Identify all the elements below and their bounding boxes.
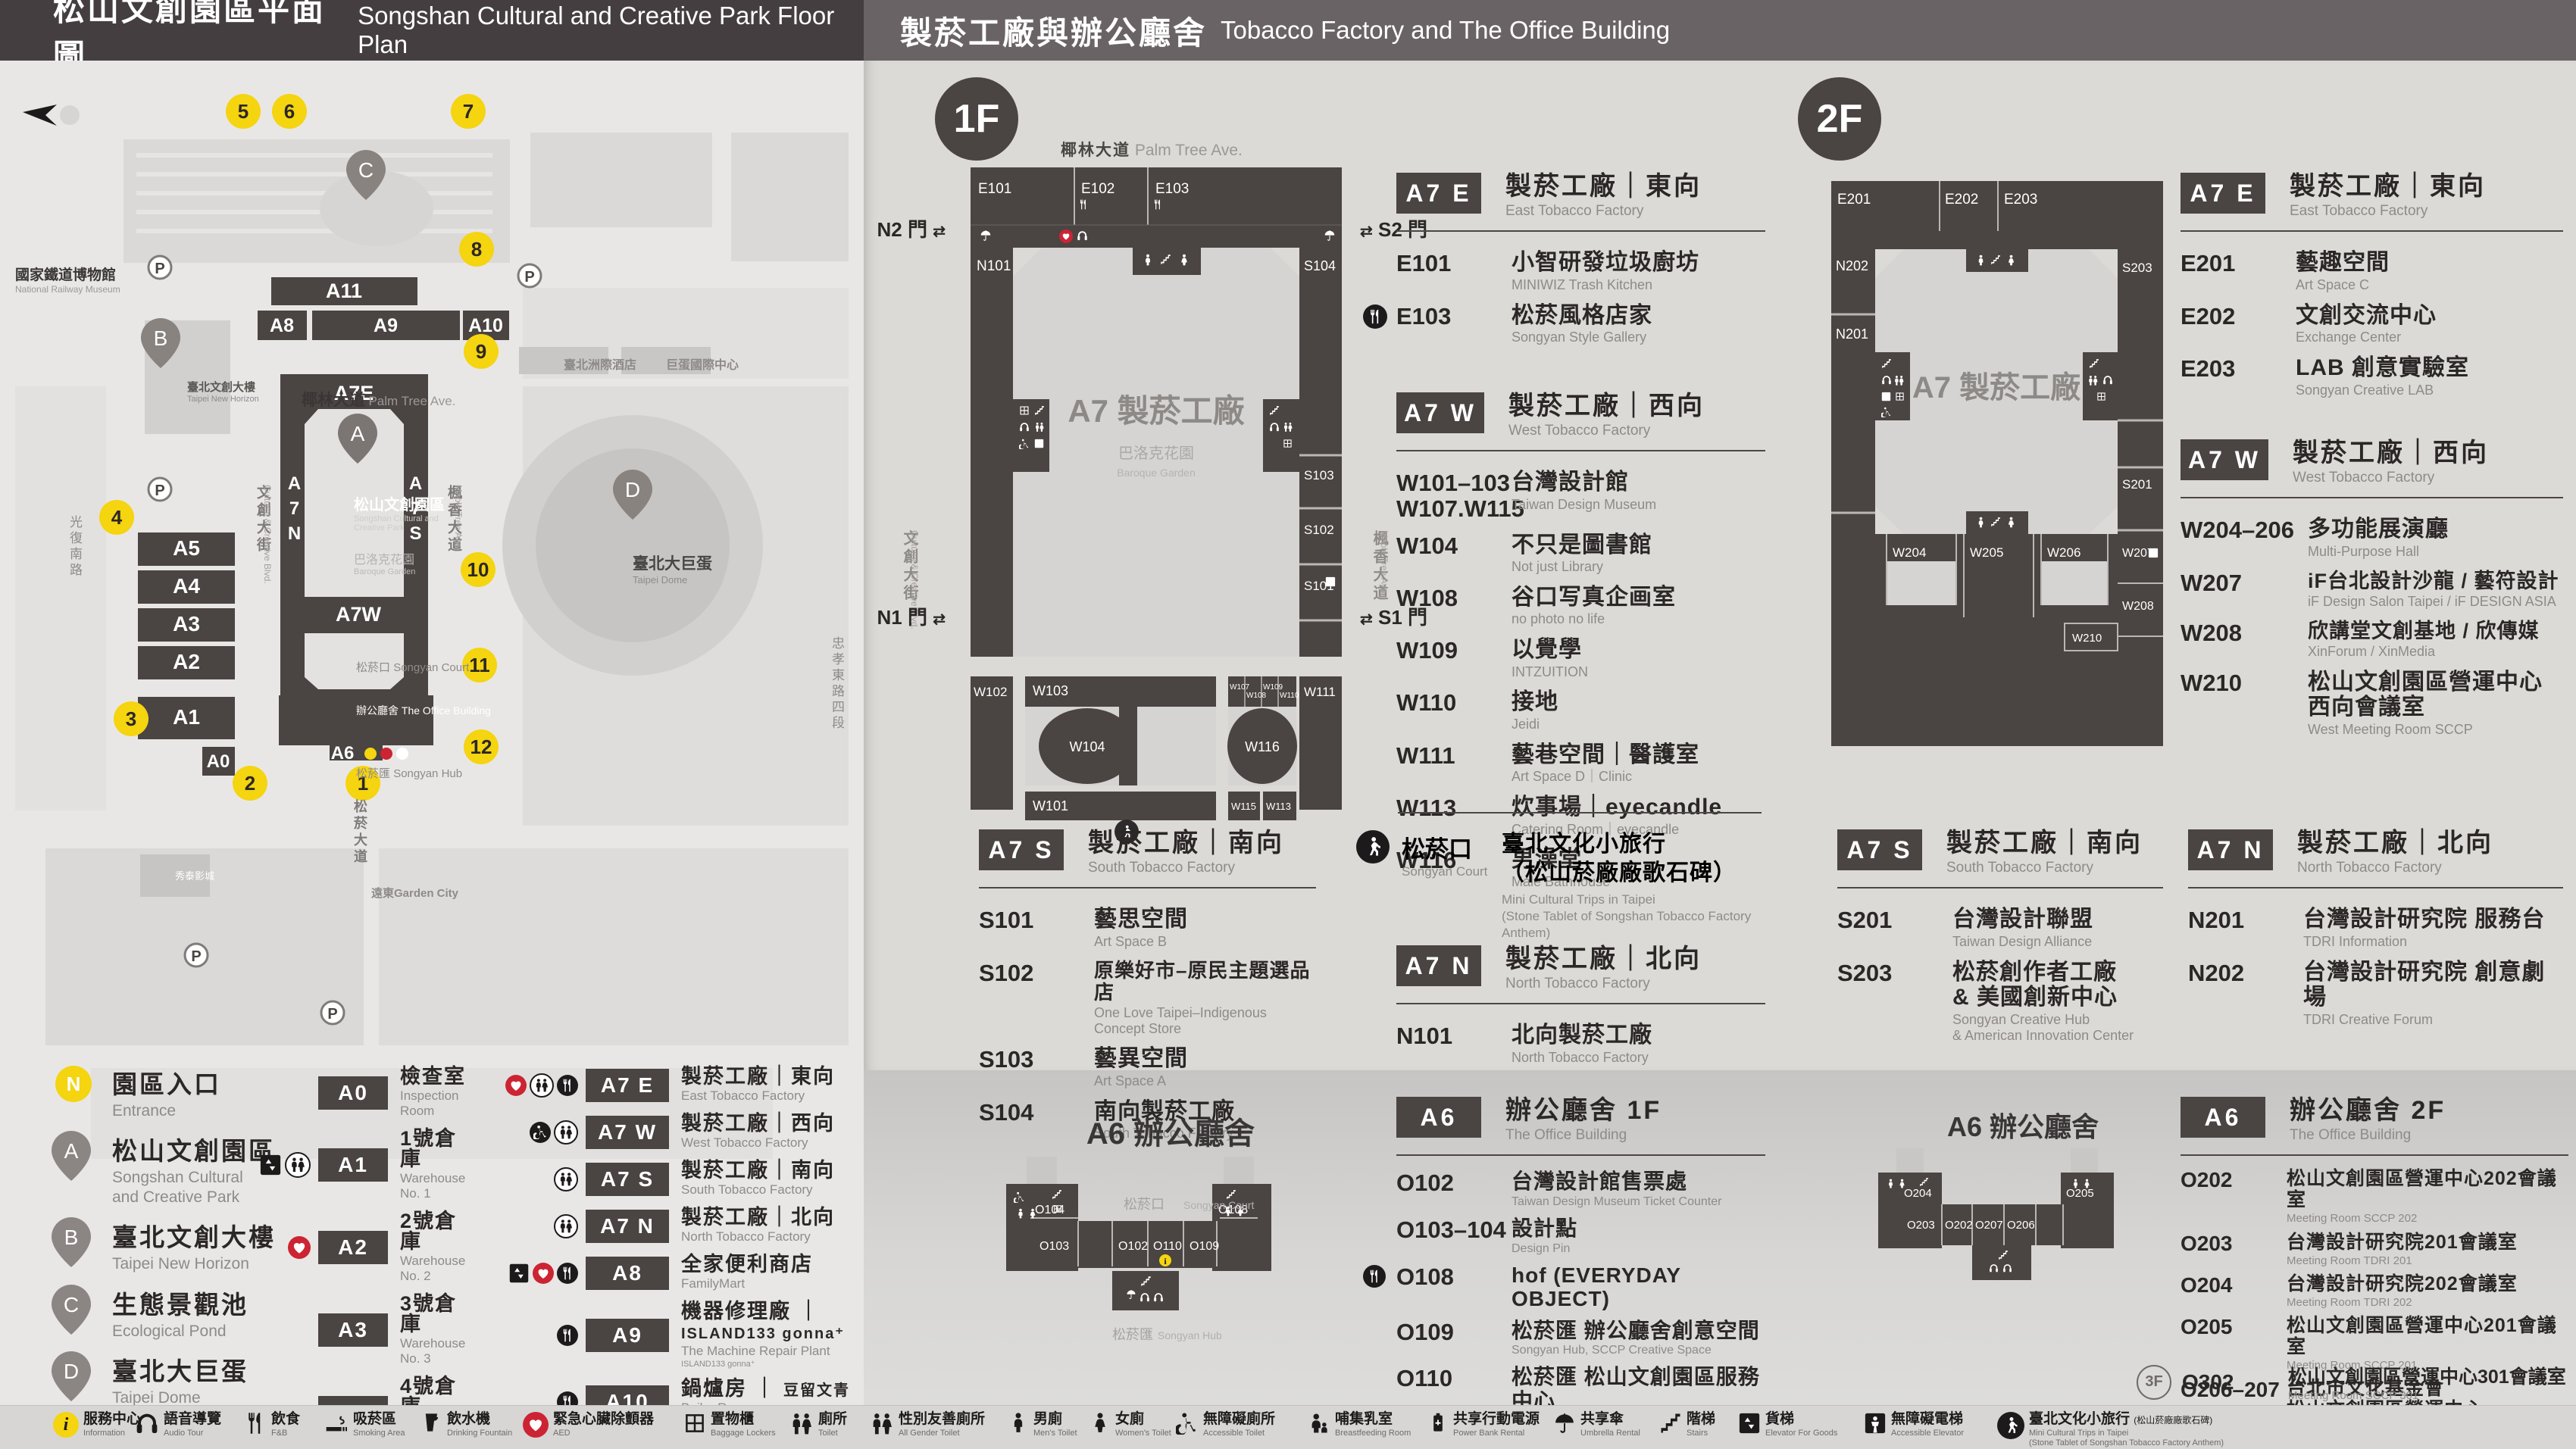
svg-text:N: N bbox=[67, 1073, 81, 1095]
legend-a7s: A7 S 製菸工廠｜南向South Tobacco Factory bbox=[481, 1160, 864, 1198]
a6-plan-title: A6 辦公廳舍 bbox=[1086, 1116, 1255, 1151]
guangfu-rd-label: 光復南路 bbox=[65, 515, 84, 579]
svg-text:3: 3 bbox=[126, 707, 136, 730]
svg-text:A: A bbox=[64, 1139, 79, 1163]
room-w113: W113 bbox=[1266, 801, 1291, 812]
room-o205: O205 bbox=[2066, 1187, 2094, 1200]
map-a7n-label: A7N bbox=[283, 473, 305, 548]
legend-a7n: A7 N 製菸工廠｜北向North Tobacco Factory bbox=[481, 1207, 864, 1244]
directory-item: W207iF台北設計沙龍 / 藝符設計iF Design Salon Taipe… bbox=[2181, 570, 2563, 610]
badge-a7w-2f: A7 W bbox=[2181, 439, 2268, 480]
map-a3-label: A3 bbox=[173, 612, 200, 635]
maple-ave-1f-en: Maple Tree Ave. bbox=[1379, 530, 1390, 596]
room-w102: W102 bbox=[974, 685, 1007, 699]
room-o206: O206 bbox=[2007, 1219, 2035, 1232]
legend-a2: A2 2號倉庫Warehouse No. 2 bbox=[214, 1211, 471, 1284]
directory-item: E101小智研發垃圾廚坊MINIWIZ Trash Kitchen bbox=[1396, 250, 1765, 292]
map-a7w-label: A7W bbox=[336, 603, 382, 626]
zhongxiao-rd-label: 忠孝東路四段 bbox=[827, 636, 846, 732]
room-w110: W110 bbox=[1280, 692, 1299, 700]
dir-2f-a7n: A7 N 製菸工廠｜北向North Tobacco Factory N201台灣… bbox=[2188, 829, 2563, 1038]
parking-icon: P bbox=[517, 263, 542, 292]
legend-a8: A8 全家便利商店FamilyMart bbox=[481, 1254, 864, 1291]
room-s103: S103 bbox=[1304, 468, 1334, 482]
svg-text:C: C bbox=[64, 1293, 79, 1316]
directory-item: O202松山文創園區營運中心202會議室Meeting Room SCCP 20… bbox=[2181, 1168, 2568, 1225]
directory-item: W108谷口写真企画室no photo no life bbox=[1396, 585, 1765, 627]
svg-text:D: D bbox=[64, 1360, 79, 1383]
directory-item: E202文創交流中心Exchange Center bbox=[2181, 303, 2563, 345]
directory-item: W110接地Jeidi bbox=[1396, 689, 1765, 732]
directory-item: O102台灣設計館售票處Taiwan Design Museum Ticket … bbox=[1396, 1170, 1765, 1209]
section-title-en: Tobacco Factory and The Office Building bbox=[1221, 16, 1670, 45]
room-s104: S104 bbox=[1304, 258, 1336, 273]
legend-a1: A1 1號倉庫Warehouse No. 1 bbox=[214, 1129, 471, 1201]
room-w208: W208 bbox=[2122, 600, 2154, 613]
room-w115: W115 bbox=[1231, 801, 1256, 812]
room-w107: W107 bbox=[1230, 683, 1250, 692]
room-o204: O204 bbox=[1904, 1187, 1932, 1200]
directory-item: W104不只是圖書館Not just Library bbox=[1396, 532, 1765, 575]
badge-a6-2f: A6 bbox=[2181, 1097, 2265, 1138]
badge-a7e: A7 E bbox=[1396, 173, 1481, 214]
room-w111: W111 bbox=[1304, 685, 1336, 699]
room-o109: O109 bbox=[1190, 1240, 1219, 1253]
legend-cultural-trip: 臺北文化小旅行 (松山菸廠廠歌石碑) Mini Cultural Trips i… bbox=[1997, 1412, 2224, 1448]
directory-item: E203LAB 創意實驗室Songyan Creative LAB bbox=[2181, 355, 2563, 398]
room-s102: S102 bbox=[1304, 523, 1334, 537]
floor-2f-badge: 2F bbox=[1798, 77, 1881, 161]
map-a0-label: A0 bbox=[207, 751, 230, 772]
svg-text:4: 4 bbox=[111, 506, 123, 529]
restaurant-icon bbox=[557, 1325, 578, 1346]
legend-all-gender: 性別友善廁所All Gender Toilet bbox=[870, 1412, 985, 1440]
svg-text:A: A bbox=[351, 422, 365, 445]
breastfeeding-icon bbox=[1308, 1412, 1330, 1438]
svg-text:B: B bbox=[154, 326, 168, 350]
legend-fountain: 飲水機Drinking Fountain bbox=[421, 1412, 512, 1438]
legend-a0: A0 檢查室Inspection Room bbox=[214, 1066, 471, 1119]
directory-item: O109松菸匯 辦公廳舍創意空間Songyan Hub, SCCP Creati… bbox=[1396, 1319, 1765, 1358]
legend-mens: 男廁Men's Toilet bbox=[1008, 1412, 1077, 1438]
aed-icon bbox=[523, 1412, 549, 1438]
walking-tour-icon bbox=[1356, 830, 1390, 863]
room-o102: O102 bbox=[1118, 1240, 1148, 1253]
hub-label: 松菸匯 bbox=[1112, 1327, 1153, 1342]
directory-item: S203松菸創作者工廠& 美國創新中心Songyan Creative Hub&… bbox=[1837, 960, 2163, 1044]
directory-item: W109以覺學INTZUITION bbox=[1396, 637, 1765, 679]
map-gate-5: 5 bbox=[225, 93, 261, 133]
info-icon: i bbox=[53, 1412, 79, 1438]
toilet-icon bbox=[530, 1073, 554, 1098]
room-w206: W206 bbox=[2047, 545, 2080, 560]
locker-icon bbox=[683, 1412, 706, 1438]
room-w204: W204 bbox=[1893, 545, 1926, 560]
legend-smoking: 吸菸區Smoking Area bbox=[324, 1412, 405, 1440]
map-pin-b: B bbox=[141, 318, 180, 368]
room-n101: N101 bbox=[977, 258, 1011, 274]
map-a4-label: A4 bbox=[173, 574, 200, 598]
svg-text:10: 10 bbox=[467, 558, 489, 581]
legend-umbrella: 共享傘Umbrella Rental bbox=[1553, 1412, 1640, 1438]
legend-accessible-elevator: 無障礙電梯Accessible Elevator bbox=[1864, 1412, 1964, 1438]
restaurant-icon bbox=[244, 1412, 267, 1438]
headphones-icon bbox=[135, 1412, 159, 1440]
room-o110: O110 bbox=[1153, 1240, 1182, 1253]
wheelchair-icon bbox=[1176, 1412, 1199, 1438]
room-e201: E201 bbox=[1837, 192, 1871, 208]
header-left: 松山文創園區平面圖 Songshan Cultural and Creative… bbox=[0, 0, 864, 61]
badge-a6: A6 bbox=[1396, 1097, 1481, 1138]
court-label: 松菸口 bbox=[1124, 1197, 1165, 1212]
room-e101: E101 bbox=[978, 181, 1011, 197]
toilet-icon bbox=[285, 1152, 311, 1178]
legend-lockers: 置物櫃Baggage Lockers bbox=[683, 1412, 776, 1438]
map-a2-label: A2 bbox=[173, 650, 200, 673]
badge-a7e-2f: A7 E bbox=[2181, 173, 2265, 214]
dir-1f-a7n: A7 N 製菸工廠｜北向North Tobacco Factory N101北向… bbox=[1396, 945, 1765, 1076]
room-o103: O103 bbox=[1039, 1240, 1069, 1253]
directory-item: W208欣講堂文創基地 / 欣傳媒XinForum / XinMedia bbox=[2181, 620, 2563, 660]
legend-a3: A3 3號倉庫Warehouse No. 3 bbox=[214, 1294, 471, 1366]
svg-text:7: 7 bbox=[463, 100, 474, 123]
men-toilet-icon bbox=[1008, 1412, 1029, 1437]
goods-elevator-icon bbox=[1738, 1412, 1761, 1438]
legend-aed: 緊急心臟除顫器AED bbox=[523, 1412, 654, 1438]
accessible-elevator-icon bbox=[1864, 1412, 1887, 1438]
map-a5-label: A5 bbox=[173, 536, 200, 560]
svg-text:P: P bbox=[191, 948, 201, 965]
directory-item: N101北向製菸工廠North Tobacco Factory bbox=[1396, 1023, 1765, 1065]
a6-2f-plan: A6 辦公廳舍 O204 O203 O202 O207 O206 O205 bbox=[1860, 1089, 2193, 1347]
map-pin-d: D bbox=[613, 470, 652, 520]
directory-item: N202台灣設計研究院 創意劇場TDRI Creative Forum bbox=[2188, 960, 2563, 1028]
legend-womens: 女廁Women's Toilet bbox=[1089, 1412, 1171, 1438]
header-right: 製菸工廠與辦公廳舍 Tobacco Factory and The Office… bbox=[864, 0, 2576, 61]
dir-2f-a7s: A7 S 製菸工廠｜南向South Tobacco Factory S201台灣… bbox=[1837, 829, 2163, 1053]
room-e102: E102 bbox=[1081, 181, 1114, 197]
elevator-icon bbox=[259, 1154, 282, 1176]
badge-a7n: A7 N bbox=[1396, 945, 1481, 986]
section-title-zh: 製菸工廠與辦公廳舍 bbox=[900, 8, 1207, 54]
toilet-icon bbox=[554, 1214, 578, 1238]
room-o203: O203 bbox=[1907, 1219, 1935, 1232]
restaurant-icon bbox=[1363, 304, 1387, 329]
all-gender-toilet-icon bbox=[870, 1412, 894, 1440]
svg-text:11: 11 bbox=[469, 654, 490, 676]
toilet-icon bbox=[554, 1120, 578, 1145]
legend-information: i 服務中心Information bbox=[53, 1412, 141, 1438]
svg-text:12: 12 bbox=[470, 735, 492, 758]
stairs-icon bbox=[1659, 1412, 1682, 1438]
map-gate-8: 8 bbox=[458, 231, 495, 271]
parking-icon: P bbox=[147, 255, 173, 284]
page-title-en: Songshan Cultural and Creative Park Floo… bbox=[358, 2, 864, 59]
directory-item: W111藝巷空間｜醫護室Art Space D｜Clinic bbox=[1396, 742, 1765, 785]
floor-2f-plan: E201 E202 E203 N202 N201 S203 S201 W204 … bbox=[1815, 170, 2178, 776]
a6-1f-plan: A6 辦公廳舍 O104 O103 O102 O110 i O109 O108 … bbox=[985, 1083, 1364, 1401]
directory-item: O108hof (EVERYDAY OBJECT) bbox=[1396, 1263, 1765, 1311]
restaurant-icon bbox=[557, 1263, 578, 1284]
directory-item: S101藝思空間Art Space B bbox=[979, 907, 1316, 949]
toilet-icon bbox=[554, 1167, 578, 1191]
svg-text:D: D bbox=[625, 478, 640, 501]
dir-2f-a7e: A7 E 製菸工廠｜東向East Tobacco Factory E201藝趣空… bbox=[2181, 173, 2563, 408]
svg-text:5: 5 bbox=[238, 100, 249, 123]
svg-text:P: P bbox=[155, 482, 164, 499]
room-s203: S203 bbox=[2122, 261, 2152, 275]
accessible-icon bbox=[530, 1122, 551, 1143]
hub-label-en: Songyan Hub bbox=[1158, 1329, 1222, 1341]
svg-text:B: B bbox=[64, 1226, 79, 1249]
floor-3f-badge: 3F bbox=[2137, 1365, 2171, 1400]
directory-item: E103松菸風格店家Songyan Style Gallery bbox=[1396, 303, 1765, 345]
aed-icon bbox=[288, 1236, 311, 1259]
palm-tree-ave-label: 椰林大道 Palm Tree Ave. bbox=[302, 388, 455, 411]
dir-2f-a7w: A7 W 製菸工廠｜西向West Tobacco Factory W204–20… bbox=[2181, 439, 2563, 747]
dir-o302: 3F O302 松山文創園區營運中心301會議室 Meeting Room SC… bbox=[2137, 1362, 2566, 1402]
dir-1f-court: 松菸口Songyan Court 臺北文化小旅行（松山菸廠廠歌石碑） Mini … bbox=[1356, 812, 1769, 942]
walking-tour-icon bbox=[1997, 1412, 2024, 1439]
a6-2f-plan-title: A6 辦公廳舍 bbox=[1947, 1111, 2099, 1142]
badge-a7s: A7 S bbox=[979, 829, 1064, 870]
legend-buildings: A0 檢查室Inspection Room A1 1號倉庫Warehouse N… bbox=[214, 1066, 471, 1449]
directory-item: O204台灣設計研究院202會議室Meeting Room TDRI 202 bbox=[2181, 1273, 2568, 1309]
room-w103: W103 bbox=[1033, 683, 1068, 698]
umbrella-icon bbox=[1553, 1412, 1576, 1438]
badge-a7n-2f: A7 N bbox=[2188, 829, 2273, 870]
gate-n2: N2 門 ⇄ bbox=[864, 214, 946, 242]
map-gate-10: 10 bbox=[460, 551, 496, 592]
directory-item: S201台灣設計聯盟Taiwan Design Alliance bbox=[1837, 907, 2163, 949]
a7-factory-label-2f: A7 製菸工廠 bbox=[1912, 370, 2080, 404]
legend-toilet: 廁所Toilet bbox=[789, 1412, 847, 1440]
smoking-icon bbox=[324, 1412, 349, 1440]
directory-item: O203台灣設計研究院201會議室Meeting Room TDRI 201 bbox=[2181, 1232, 2568, 1267]
women-toilet-icon bbox=[1089, 1412, 1111, 1437]
room-n202: N202 bbox=[1836, 258, 1868, 273]
dir-1f-a6: A6 辦公廳舍 1FThe Office Building O102台灣設計館售… bbox=[1396, 1097, 1765, 1435]
room-e202: E202 bbox=[1945, 192, 1978, 208]
svg-text:C: C bbox=[358, 158, 374, 182]
map-a9-label: A9 bbox=[374, 315, 398, 336]
map-gate-12: 12 bbox=[463, 729, 499, 769]
floor-plan-poster: 松山文創園區平面圖 Songshan Cultural and Creative… bbox=[0, 0, 2576, 1449]
aed-icon bbox=[533, 1263, 554, 1284]
railway-museum-label: 國家鐵道博物館 National Railway Museum bbox=[15, 264, 129, 295]
map-a7s-label: A7S bbox=[405, 473, 426, 548]
svg-text:9: 9 bbox=[476, 340, 486, 363]
gate-n1: N1 門 ⇄ bbox=[864, 602, 946, 630]
legend-breastfeeding: 哺集乳室Breastfeeding Room bbox=[1308, 1412, 1411, 1438]
parking-icon: P bbox=[320, 1000, 345, 1029]
drinking-fountain-icon bbox=[421, 1412, 442, 1437]
map-gate-3: 3 bbox=[113, 701, 149, 741]
svg-text:6: 6 bbox=[284, 100, 295, 123]
songyan-blvd-label: 松菸大道 bbox=[350, 799, 370, 866]
svg-text:2: 2 bbox=[245, 772, 255, 795]
legend-fnb: 飲食F&B bbox=[244, 1412, 300, 1438]
map-a11-label: A11 bbox=[326, 279, 362, 302]
legend-audio-tour: 語音導覽Audio Tour bbox=[135, 1412, 221, 1440]
restaurant-icon bbox=[557, 1075, 578, 1096]
badge-a7w: A7 W bbox=[1396, 392, 1484, 433]
map-gate-4: 4 bbox=[98, 499, 135, 539]
cultural-blvd-en: Cultural & Creative Blvd. bbox=[262, 485, 273, 584]
map-a6-label: A6 bbox=[331, 743, 355, 764]
room-o104: O104 bbox=[1035, 1204, 1064, 1216]
toilet-icon bbox=[789, 1412, 814, 1440]
aed-icon bbox=[505, 1075, 527, 1096]
directory-item: O103–104設計點Design Pin bbox=[1396, 1216, 1765, 1256]
room-w109: W109 bbox=[1263, 683, 1283, 692]
legend-a7e: A7 E 製菸工廠｜東向East Tobacco Factory bbox=[481, 1066, 864, 1104]
floor-1f-plan: E101 E102 E103 N101 S104 S103 S102 S101 … bbox=[951, 155, 1354, 848]
room-w104: W104 bbox=[1069, 739, 1105, 754]
directory-item: W101–103W107.W115台灣設計館Taiwan Design Muse… bbox=[1396, 470, 1765, 522]
court-label-en: Songyan Court bbox=[1183, 1199, 1255, 1211]
svg-text:P: P bbox=[155, 261, 164, 277]
room-w101: W101 bbox=[1033, 798, 1068, 814]
facility-legend-strip: i 服務中心Information 語音導覽Audio Tour 飲食F&B 吸… bbox=[0, 1405, 2576, 1449]
elevator-icon bbox=[508, 1263, 530, 1284]
a7-factory-label: A7 製菸工廠 bbox=[1068, 393, 1244, 429]
map-a8-label: A8 bbox=[270, 315, 294, 336]
room-w205: W205 bbox=[1970, 545, 2003, 560]
legend-goods-elevator: 貨梯Elevator For Goods bbox=[1738, 1412, 1837, 1438]
room-w108: W108 bbox=[1246, 692, 1267, 700]
room-w116: W116 bbox=[1245, 739, 1280, 754]
room-s201: S201 bbox=[2122, 477, 2152, 492]
legend-a9: A9 機器修理廠 ｜ ISLAND133 gonna⁺ The Machine … bbox=[481, 1301, 864, 1369]
parking-icon: P bbox=[183, 942, 209, 972]
badge-a7s-2f: A7 S bbox=[1837, 829, 1922, 870]
legend-factories: A7 E 製菸工廠｜東向East Tobacco Factory A7 W 製菸… bbox=[481, 1066, 864, 1449]
room-o207: O207 bbox=[1975, 1219, 2003, 1232]
power-bank-icon bbox=[1427, 1412, 1449, 1437]
floor-1f-badge: 1F bbox=[935, 77, 1018, 161]
baroque-zh: 巴洛克花園 bbox=[1118, 445, 1194, 462]
restaurant-icon bbox=[1363, 1265, 1386, 1288]
map-gate-7: 7 bbox=[450, 93, 486, 133]
legend-a7w: A7 W 製菸工廠｜西向West Tobacco Factory bbox=[481, 1113, 864, 1151]
map-pin-c: C bbox=[346, 150, 386, 200]
site-map-panel: A11 A8 A9 A10 A7E A7W A5 A4 A3 A2 A1 A0 … bbox=[0, 61, 864, 1405]
room-o202: O202 bbox=[1945, 1219, 1973, 1232]
parking-icon: P bbox=[147, 476, 173, 506]
svg-text:P: P bbox=[327, 1006, 337, 1023]
legend-power-bank: 共享行動電源Power Bank Rental bbox=[1427, 1412, 1540, 1438]
directory-item: N201台灣設計研究院 服務台TDRI Information bbox=[2188, 907, 2563, 949]
directory-item: E201藝趣空間Art Space C bbox=[2181, 250, 2563, 292]
directory-item: W204–206多功能展演廳Multi-Purpose Hall bbox=[2181, 517, 2563, 559]
map-gate-6: 6 bbox=[271, 93, 308, 133]
room-w210: W210 bbox=[2072, 632, 2102, 645]
legend-stairs: 階梯Stairs bbox=[1659, 1412, 1715, 1438]
legend-accessible-toilet: 無障礙廁所Accessible Toilet bbox=[1176, 1412, 1275, 1438]
room-e203: E203 bbox=[2004, 192, 2037, 208]
map-gate-9: 9 bbox=[463, 333, 499, 373]
directory-item: W210松山文創園區營運中心西向會議室West Meeting Room SCC… bbox=[2181, 670, 2563, 738]
svg-text:P: P bbox=[524, 269, 534, 286]
map-a1-label: A1 bbox=[173, 705, 200, 729]
map-gate-2: 2 bbox=[232, 765, 268, 805]
maple-ave-en: Maple Tree Ave. bbox=[453, 485, 464, 551]
directory-item: S102原樂好市–原民主題選品店One Love Taipei–Indigeno… bbox=[979, 960, 1316, 1037]
baroque-en: Baroque Garden bbox=[1117, 467, 1196, 479]
room-n201: N201 bbox=[1836, 326, 1868, 342]
room-e103: E103 bbox=[1155, 181, 1189, 197]
svg-text:8: 8 bbox=[471, 238, 482, 261]
map-pin-a: A bbox=[338, 414, 377, 464]
dir-1f-a7e: A7 E 製菸工廠｜東向East Tobacco Factory E101小智研… bbox=[1396, 173, 1765, 355]
